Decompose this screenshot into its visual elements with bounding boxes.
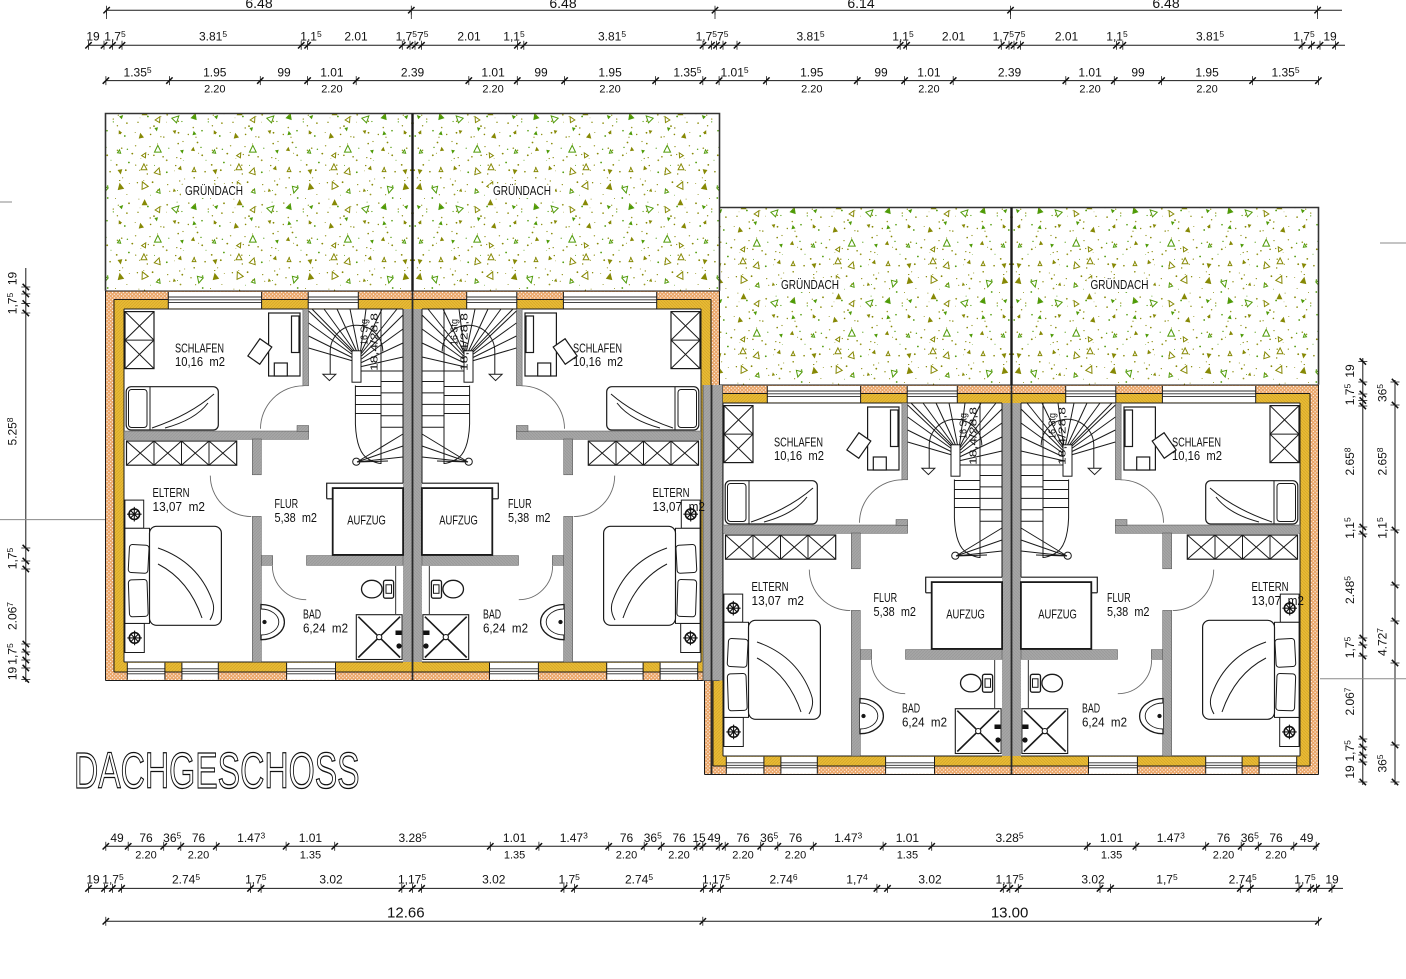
svg-text:3.815: 3.815: [598, 29, 626, 44]
svg-text:2.20: 2.20: [321, 84, 342, 96]
svg-text:1.355: 1.355: [673, 65, 701, 80]
svg-text:3.02: 3.02: [1081, 873, 1105, 887]
svg-text:1,175: 1,175: [398, 872, 426, 887]
svg-text:BAD: BAD: [483, 608, 501, 622]
svg-text:1,7575: 1,7575: [396, 29, 429, 44]
svg-text:AUFZUG: AUFZUG: [439, 514, 478, 528]
svg-text:2.20: 2.20: [599, 84, 620, 96]
svg-text:2.746: 2.746: [769, 872, 797, 887]
svg-text:6,24 m2: 6,24 m2: [483, 622, 528, 636]
svg-text:2.658: 2.658: [1343, 447, 1358, 475]
svg-text:2.01: 2.01: [344, 30, 368, 44]
svg-text:1,15: 1,15: [892, 29, 914, 44]
svg-text:6,24 m2: 6,24 m2: [902, 716, 947, 730]
svg-text:19: 19: [1325, 873, 1339, 887]
svg-text:365: 365: [1375, 754, 1390, 772]
svg-text:6.48: 6.48: [245, 0, 272, 11]
svg-text:2.745: 2.745: [625, 872, 653, 887]
svg-text:76: 76: [139, 831, 153, 845]
svg-text:BAD: BAD: [1082, 702, 1100, 716]
svg-text:18,4/28,8: 18,4/28,8: [370, 312, 381, 371]
svg-text:2.485: 2.485: [1343, 576, 1358, 604]
svg-text:3.02: 3.02: [918, 873, 942, 887]
svg-text:365: 365: [760, 831, 778, 846]
svg-text:1.35: 1.35: [1101, 850, 1122, 862]
svg-text:1,75: 1,75: [1343, 740, 1358, 762]
svg-text:1,75: 1,75: [5, 548, 20, 570]
svg-text:10,16 m2: 10,16 m2: [1172, 449, 1222, 463]
svg-text:13.00: 13.00: [991, 905, 1029, 922]
svg-text:1,75: 1,75: [558, 872, 580, 887]
svg-text:13,07 m2: 13,07 m2: [653, 500, 706, 514]
svg-text:2.20: 2.20: [732, 850, 753, 862]
svg-text:365: 365: [163, 831, 181, 846]
svg-text:1,75: 1,75: [1156, 872, 1178, 887]
svg-text:1,175: 1,175: [702, 872, 730, 887]
svg-text:13,07 m2: 13,07 m2: [153, 500, 206, 514]
svg-text:99: 99: [534, 66, 548, 80]
svg-text:3.02: 3.02: [482, 873, 506, 887]
svg-text:GRÜNDACH: GRÜNDACH: [493, 184, 551, 198]
svg-text:1,75: 1,75: [1343, 384, 1358, 406]
svg-text:GRÜNDACH: GRÜNDACH: [1091, 278, 1149, 292]
svg-text:76: 76: [789, 831, 803, 845]
svg-text:1.95: 1.95: [203, 66, 227, 80]
svg-text:99: 99: [874, 66, 888, 80]
svg-text:3.02: 3.02: [319, 873, 343, 887]
svg-text:5,38 m2: 5,38 m2: [275, 511, 318, 525]
svg-text:2.01: 2.01: [1055, 30, 1079, 44]
svg-text:1.01: 1.01: [896, 831, 920, 845]
svg-text:10,16 m2: 10,16 m2: [175, 355, 225, 369]
svg-text:SCHLAFEN: SCHLAFEN: [1172, 436, 1221, 450]
svg-text:FLUR: FLUR: [1107, 591, 1131, 605]
svg-text:FLUR: FLUR: [508, 497, 532, 511]
svg-text:1.35: 1.35: [504, 850, 525, 862]
svg-text:BAD: BAD: [303, 608, 321, 622]
svg-text:15: 15: [692, 831, 706, 845]
svg-text:49: 49: [707, 831, 721, 845]
svg-text:SCHLAFEN: SCHLAFEN: [175, 342, 224, 356]
svg-text:19: 19: [6, 272, 20, 286]
svg-text:1.01: 1.01: [1078, 66, 1102, 80]
svg-text:2.745: 2.745: [172, 872, 200, 887]
svg-text:1.35: 1.35: [897, 850, 918, 862]
svg-text:GRÜNDACH: GRÜNDACH: [185, 184, 243, 198]
svg-text:76: 76: [1269, 831, 1283, 845]
svg-text:ELTERN: ELTERN: [153, 486, 190, 500]
svg-text:3.285: 3.285: [398, 831, 426, 846]
svg-text:2.20: 2.20: [785, 850, 806, 862]
svg-text:1,75: 1,75: [5, 293, 20, 315]
svg-text:6,24 m2: 6,24 m2: [1082, 716, 1127, 730]
svg-text:1.01: 1.01: [917, 66, 941, 80]
svg-text:76: 76: [620, 831, 634, 845]
svg-text:49: 49: [110, 831, 124, 845]
svg-text:AUFZUG: AUFZUG: [1038, 608, 1077, 622]
svg-text:1,75: 1,75: [1343, 637, 1358, 659]
svg-text:19: 19: [1343, 364, 1357, 378]
svg-text:2.01: 2.01: [942, 30, 966, 44]
svg-text:1.01: 1.01: [1100, 831, 1124, 845]
svg-text:13,07 m2: 13,07 m2: [1252, 594, 1305, 608]
svg-text:1,15: 1,15: [1106, 29, 1128, 44]
svg-text:19: 19: [86, 30, 100, 44]
svg-text:4.727: 4.727: [1375, 628, 1390, 656]
svg-text:1.015: 1.015: [721, 65, 749, 80]
svg-text:FLUR: FLUR: [874, 591, 898, 605]
svg-text:SCHLAFEN: SCHLAFEN: [774, 436, 823, 450]
svg-text:1.01: 1.01: [299, 831, 323, 845]
svg-text:2.067: 2.067: [1343, 687, 1358, 715]
svg-text:1.95: 1.95: [1195, 66, 1219, 80]
svg-text:19: 19: [1343, 765, 1357, 779]
svg-text:1.01: 1.01: [481, 66, 505, 80]
svg-text:3.815: 3.815: [1196, 29, 1224, 44]
svg-text:19: 19: [1323, 30, 1337, 44]
svg-text:99: 99: [1131, 66, 1145, 80]
svg-text:99: 99: [277, 66, 291, 80]
svg-text:18,4/28,8: 18,4/28,8: [1058, 406, 1069, 465]
svg-text:1.355: 1.355: [1271, 65, 1299, 80]
svg-text:2.20: 2.20: [616, 850, 637, 862]
svg-text:FLUR: FLUR: [275, 497, 299, 511]
svg-text:SCHLAFEN: SCHLAFEN: [573, 342, 622, 356]
svg-text:2.01: 2.01: [457, 30, 481, 44]
svg-text:1,7575: 1,7575: [696, 29, 729, 44]
svg-text:2.20: 2.20: [1213, 850, 1234, 862]
svg-text:AUFZUG: AUFZUG: [347, 514, 386, 528]
svg-text:ELTERN: ELTERN: [1252, 580, 1289, 594]
svg-text:10,16 m2: 10,16 m2: [774, 449, 824, 463]
svg-text:2.20: 2.20: [668, 850, 689, 862]
svg-text:5,38 m2: 5,38 m2: [508, 511, 551, 525]
svg-text:76: 76: [192, 831, 206, 845]
svg-text:2.20: 2.20: [204, 84, 225, 96]
svg-text:BAD: BAD: [902, 702, 920, 716]
svg-text:2.20: 2.20: [188, 850, 209, 862]
svg-text:2.658: 2.658: [1375, 447, 1390, 475]
svg-text:6,24 m2: 6,24 m2: [303, 622, 348, 636]
svg-text:19: 19: [86, 873, 100, 887]
svg-text:1,15: 1,15: [1343, 517, 1358, 539]
svg-text:2.20: 2.20: [918, 84, 939, 96]
svg-text:2.20: 2.20: [801, 84, 822, 96]
svg-text:1,75: 1,75: [1294, 872, 1316, 887]
svg-text:2.20: 2.20: [135, 850, 156, 862]
svg-text:18,4/28,8: 18,4/28,8: [460, 312, 471, 371]
svg-text:5.258: 5.258: [5, 417, 20, 445]
svg-text:12.66: 12.66: [387, 905, 425, 922]
svg-text:6.14: 6.14: [847, 0, 874, 11]
svg-text:DACHGESCHOSS: DACHGESCHOSS: [74, 742, 360, 799]
svg-text:1.01: 1.01: [503, 831, 527, 845]
svg-text:2.39: 2.39: [998, 66, 1022, 80]
svg-text:10,16 m2: 10,16 m2: [573, 355, 623, 369]
svg-text:1,15: 1,15: [503, 29, 525, 44]
svg-text:5,38 m2: 5,38 m2: [874, 605, 917, 619]
svg-text:3.815: 3.815: [199, 29, 227, 44]
svg-text:1.35: 1.35: [300, 850, 321, 862]
svg-text:1,15: 1,15: [1375, 517, 1390, 539]
svg-text:2.067: 2.067: [5, 602, 20, 630]
svg-text:2.745: 2.745: [1229, 872, 1257, 887]
svg-text:76: 76: [672, 831, 686, 845]
svg-text:1.95: 1.95: [598, 66, 622, 80]
svg-text:1.95: 1.95: [800, 66, 824, 80]
svg-text:1.01: 1.01: [320, 66, 344, 80]
svg-text:1,75: 1,75: [245, 872, 267, 887]
svg-text:6.48: 6.48: [549, 0, 576, 11]
svg-text:365: 365: [1241, 831, 1259, 846]
svg-text:1,75: 1,75: [104, 29, 126, 44]
svg-text:GRÜNDACH: GRÜNDACH: [781, 278, 839, 292]
svg-text:ELTERN: ELTERN: [752, 580, 789, 594]
svg-text:6.48: 6.48: [1152, 0, 1179, 11]
svg-text:3.815: 3.815: [796, 29, 824, 44]
svg-text:76: 76: [736, 831, 750, 845]
svg-text:2.20: 2.20: [1079, 84, 1100, 96]
svg-text:2.20: 2.20: [1265, 850, 1286, 862]
svg-text:1.473: 1.473: [834, 831, 862, 846]
svg-text:1,75: 1,75: [5, 643, 20, 665]
svg-text:1,74: 1,74: [846, 872, 868, 887]
svg-text:49: 49: [1300, 831, 1314, 845]
svg-text:1.473: 1.473: [1157, 831, 1185, 846]
svg-text:2.20: 2.20: [1196, 84, 1217, 96]
svg-text:2.20: 2.20: [482, 84, 503, 96]
svg-text:76: 76: [1217, 831, 1231, 845]
svg-text:1.473: 1.473: [560, 831, 588, 846]
svg-text:1.473: 1.473: [237, 831, 265, 846]
svg-text:1,15: 1,15: [300, 29, 322, 44]
svg-text:365: 365: [1375, 384, 1390, 402]
svg-text:365: 365: [644, 831, 662, 846]
svg-text:1.355: 1.355: [124, 65, 152, 80]
svg-text:AUFZUG: AUFZUG: [946, 608, 985, 622]
svg-text:18,4/28,8: 18,4/28,8: [969, 406, 980, 465]
svg-text:ELTERN: ELTERN: [653, 486, 690, 500]
svg-text:1,175: 1,175: [996, 872, 1024, 887]
svg-text:19: 19: [6, 667, 20, 681]
svg-text:3.285: 3.285: [995, 831, 1023, 846]
svg-text:5,38 m2: 5,38 m2: [1107, 605, 1150, 619]
svg-text:1,75: 1,75: [102, 872, 124, 887]
svg-text:2.39: 2.39: [401, 66, 425, 80]
svg-text:13,07 m2: 13,07 m2: [752, 594, 805, 608]
